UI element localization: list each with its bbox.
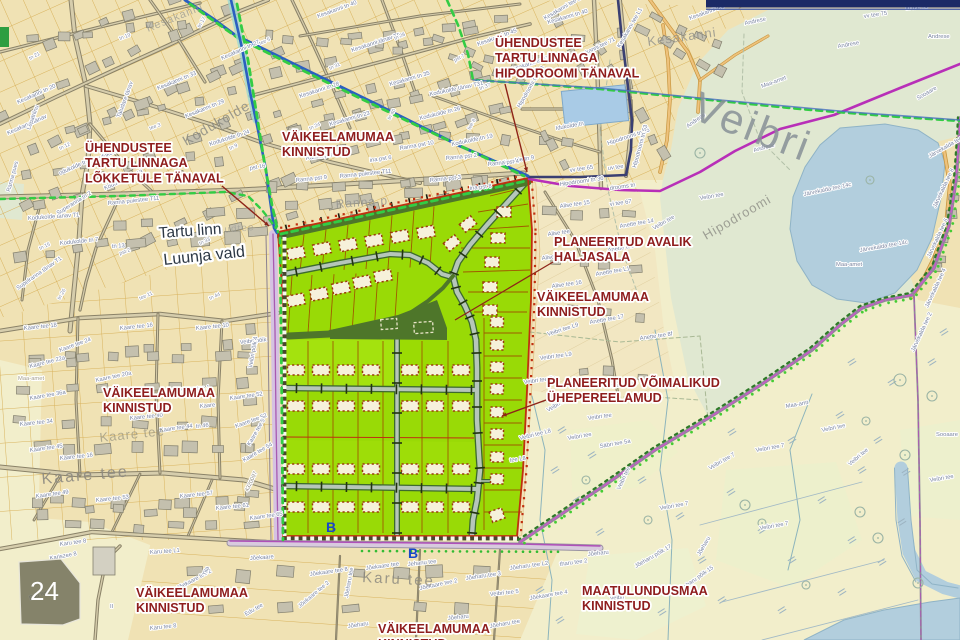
svg-text:PLANEERITUD AVALIK: PLANEERITUD AVALIK [554,235,692,249]
svg-text:ÜHEPEREELAMUD: ÜHEPEREELAMUD [547,390,662,405]
svg-text:Maa-amet: Maa-amet [18,376,44,382]
svg-text:Sooaare: Sooaare [936,432,958,438]
svg-text:HIPODROOMI TÄNAVAL: HIPODROOMI TÄNAVAL [495,65,640,80]
svg-text:HALJASALA: HALJASALA [554,250,630,264]
svg-text:MAATULUNDUSMAA: MAATULUNDUSMAA [582,584,708,598]
svg-text:VÄIKEELAMUMAA: VÄIKEELAMUMAA [282,129,394,144]
svg-text:B: B [326,519,336,535]
svg-text:VÄIKEELAMUMAA: VÄIKEELAMUMAA [136,585,248,600]
svg-text:Andrese: Andrese [928,34,950,40]
svg-text:KINNISTUD: KINNISTUD [582,599,651,613]
svg-text:ÜHENDUSTEE: ÜHENDUSTEE [85,140,172,155]
svg-text:LÕKKETULE TÄNAVAL: LÕKKETULE TÄNAVAL [85,170,224,185]
svg-text:VÄIKEELAMUMAA: VÄIKEELAMUMAA [378,621,490,636]
svg-text:KINNISTUD: KINNISTUD [103,401,172,415]
svg-text:KINNISTUD: KINNISTUD [537,305,606,319]
svg-text:TARTU LINNAGA: TARTU LINNAGA [85,156,188,170]
svg-text:Maa-amet: Maa-amet [836,262,862,268]
svg-text:II: II [110,604,114,610]
svg-text:KINNISTUD: KINNISTUD [282,145,351,159]
svg-text:TARTU LINNAGA: TARTU LINNAGA [495,51,598,65]
svg-text:VÄIKEELAMUMAA: VÄIKEELAMUMAA [103,385,215,400]
svg-text:24: 24 [30,576,59,606]
svg-text:VÄIKEELAMUMAA: VÄIKEELAMUMAA [537,289,649,304]
svg-text:ÜHENDUSTEE: ÜHENDUSTEE [495,35,582,50]
svg-text:B: B [408,545,418,561]
svg-text:PLANEERITUD VÕIMALIKUD: PLANEERITUD VÕIMALIKUD [547,375,720,390]
svg-text:KINNISTUD: KINNISTUD [136,601,205,615]
